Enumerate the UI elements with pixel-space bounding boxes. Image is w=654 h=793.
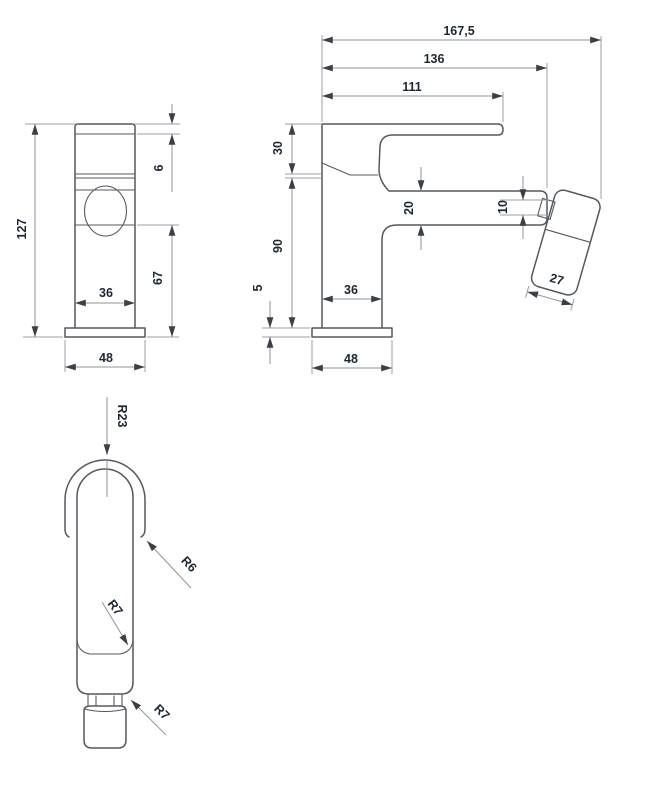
radius-label-r23: R23: [115, 405, 129, 428]
dim-label-5: 5: [251, 284, 265, 291]
technical-drawing: 127 6 67 36 48 27: [0, 0, 654, 793]
front-base-plate: [65, 328, 145, 337]
dim-label-27: 27: [548, 271, 565, 288]
dim-label-10: 10: [496, 200, 510, 214]
radius-label-r7-seam: R7: [105, 597, 126, 618]
dim-label-127: 127: [15, 219, 29, 240]
side-spray-head-group: 27: [515, 185, 602, 311]
spray-body-outline: [77, 469, 133, 694]
spray-nozzle-rim: [84, 709, 126, 712]
dim-label-67: 67: [151, 271, 165, 285]
dim-label-167: 167,5: [443, 24, 474, 38]
dim-label-36-side: 36: [344, 283, 358, 297]
dim-label-136: 136: [424, 52, 445, 66]
side-view: 27 167,5 136 111 30 90 5 20: [251, 24, 602, 374]
dim-label-48-side: 48: [344, 352, 358, 366]
front-view: 127 6 67 36 48: [15, 104, 180, 372]
side-body-outline: [322, 124, 547, 328]
dim-label-30: 30: [271, 141, 285, 155]
spray-body-seam-arc: [77, 640, 133, 654]
side-base-plate: [312, 328, 392, 337]
front-spray-holder-ellipse: [85, 186, 127, 236]
dim-label-20: 20: [402, 201, 416, 215]
dim-label-111: 111: [402, 80, 422, 94]
side-lever-front-slope: [322, 163, 378, 175]
spray-head-seam: [545, 229, 590, 242]
spray-nozzle-cup: [84, 706, 126, 748]
dim-label-36-front: 36: [99, 286, 113, 300]
radius-label-r7-corner: R7: [151, 702, 172, 723]
hand-spray-detail-view: R23 R6 R7 R7: [65, 397, 200, 748]
radius-label-r6: R6: [178, 554, 199, 575]
dim-label-90: 90: [271, 239, 285, 253]
dim-label-48-front: 48: [99, 351, 113, 365]
dim-label-6: 6: [152, 164, 166, 171]
drawing-sheet: 127 6 67 36 48 27: [0, 0, 654, 793]
